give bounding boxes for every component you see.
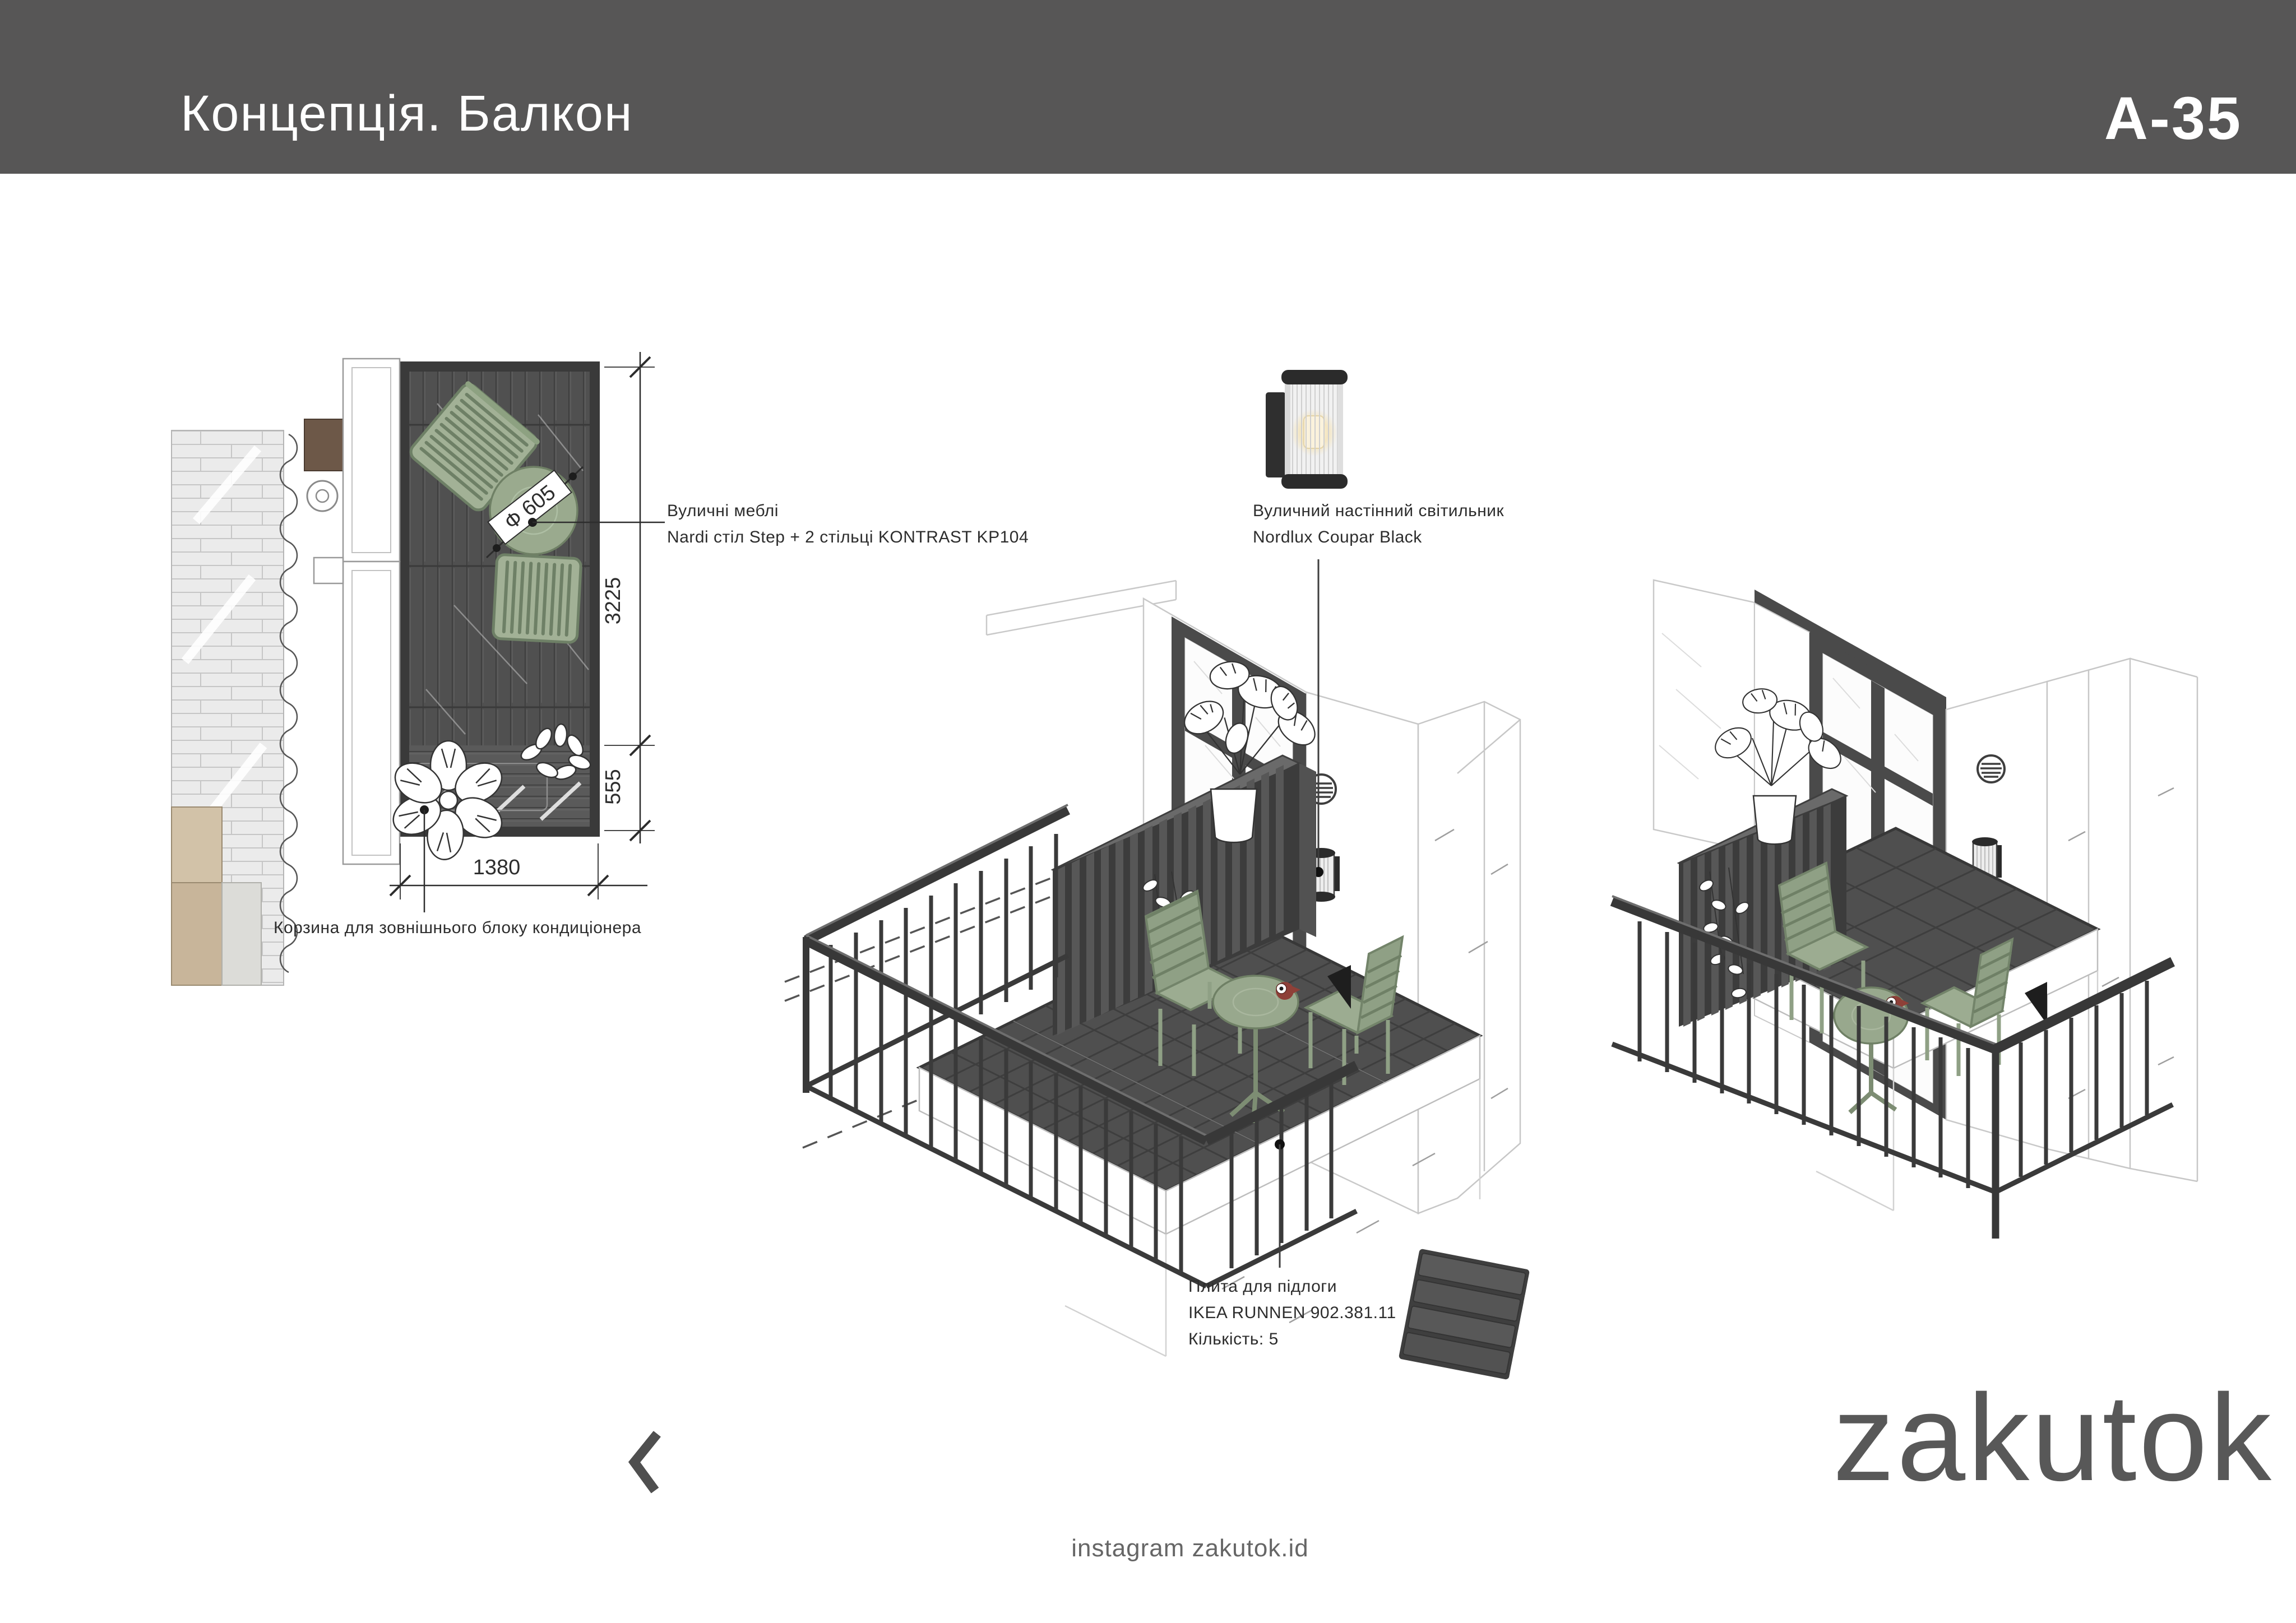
floor-plan: Ф 605	[163, 325, 762, 998]
tile-note-line1: Плита для підлоги	[1188, 1273, 1396, 1300]
header-bar: Концепція. Балкон A-35	[0, 0, 2296, 174]
vent-grille-icon	[1978, 755, 2005, 782]
page-title: Концепція. Балкон	[180, 85, 633, 143]
side-column	[1418, 702, 1520, 1213]
wall-lamp-photo	[1264, 363, 1348, 495]
plan-chair	[493, 554, 581, 643]
lamp-note-line1: Вуличний настінний світильник	[1253, 498, 1504, 524]
chevron-icon	[627, 1430, 661, 1494]
tile-note-line3: Кількість: 5	[1188, 1326, 1396, 1352]
lamp-note: Вуличний настінний світильник Nordlux Co…	[1253, 498, 1504, 550]
isometric-view-side	[1609, 572, 2259, 1300]
plan-wall	[172, 419, 346, 985]
dim-basket-depth: 555	[601, 769, 625, 804]
sheet-number: A-35	[2104, 83, 2242, 153]
dim-width: 1380	[473, 856, 521, 879]
floor-tile-note: Плита для підлоги IKEA RUNNEN 902.381.11…	[1188, 1273, 1396, 1352]
furniture-note-line1: Вуличні меблі	[667, 498, 1029, 524]
tile-note-line2: IKEA RUNNEN 902.381.11	[1188, 1300, 1396, 1326]
brand-logo: zakutok	[1833, 1376, 2274, 1499]
instagram-handle[interactable]: instagram zakutok.id	[1071, 1534, 1309, 1562]
lamp-note-line2: Nordlux Coupar Black	[1253, 524, 1504, 550]
concept-sheet: Концепція. Балкон A-35	[0, 0, 2296, 1623]
ac-basket-note-line: Корзина для зовнішнього блоку кондиціоне…	[274, 915, 641, 941]
dim-depth-total: 3225	[601, 577, 625, 625]
furniture-note: Вуличні меблі Nardi стіл Step + 2 стільц…	[667, 498, 1029, 550]
furniture-note-line2: Nardi стіл Step + 2 стільці KONTRAST KP1…	[667, 524, 1029, 550]
ac-basket-note: Корзина для зовнішнього блоку кондиціоне…	[274, 915, 641, 941]
deck-tile-photo	[1385, 1241, 1553, 1387]
